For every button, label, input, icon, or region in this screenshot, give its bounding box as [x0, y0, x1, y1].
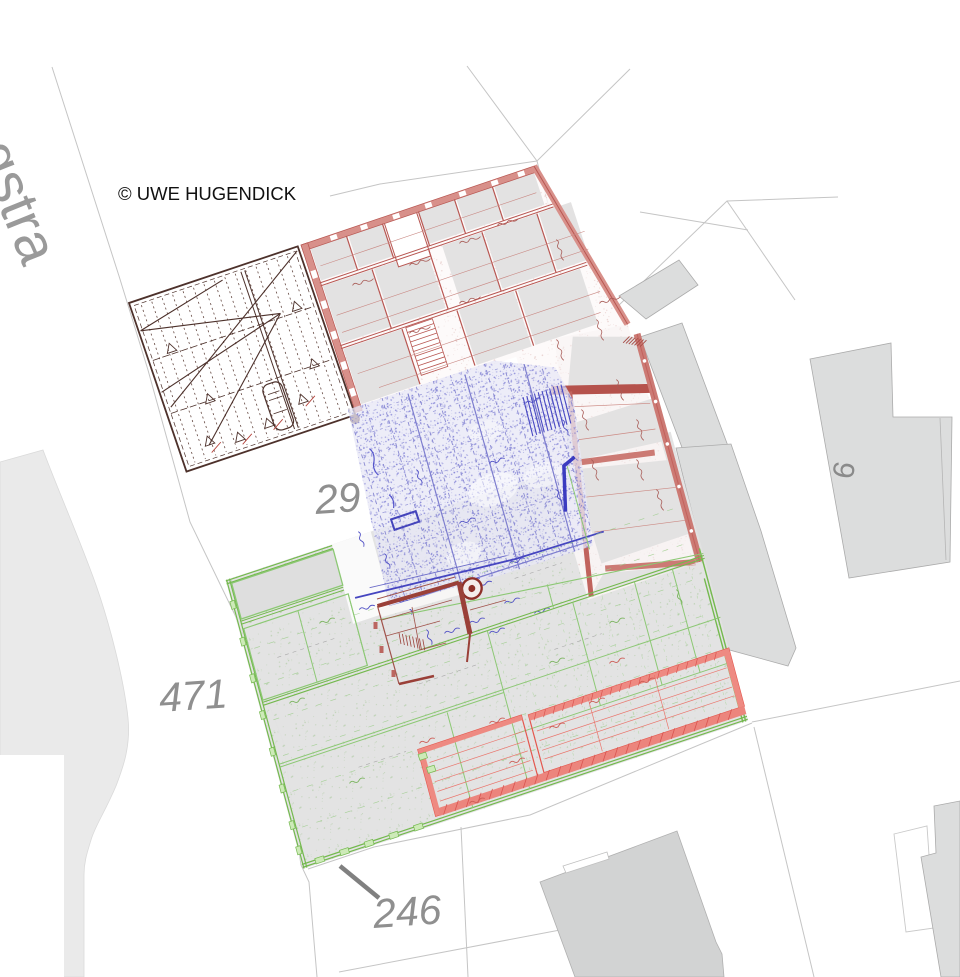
svg-text:471: 471 — [157, 670, 228, 721]
svg-text:© UWE HUGENDICK: © UWE HUGENDICK — [118, 183, 297, 204]
svg-text:246: 246 — [370, 886, 443, 937]
svg-text:29: 29 — [312, 474, 362, 523]
